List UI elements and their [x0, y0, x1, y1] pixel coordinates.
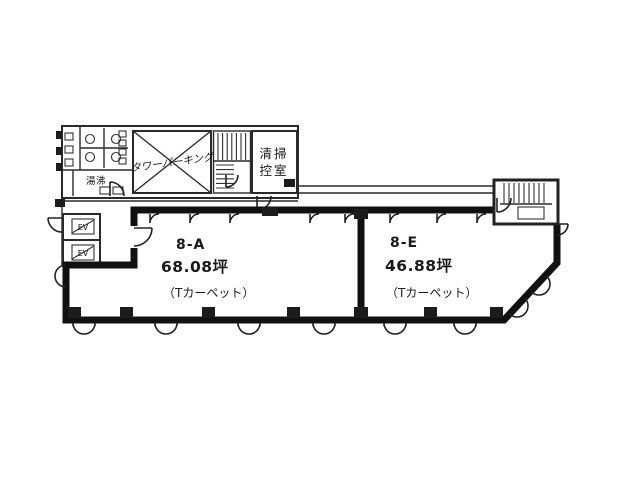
- hot-water-label: 湯沸: [86, 175, 106, 187]
- unit-8e-area: 46.88坪: [385, 257, 453, 275]
- unit-8a-area: 68.08坪: [161, 258, 229, 276]
- unit-8e-id: 8-E: [390, 235, 418, 251]
- floor-plan-page: 湯沸 タワーパーキング 清掃 控室: [0, 0, 640, 480]
- elevator-label: EV: [78, 223, 89, 232]
- unit-8a-id: 8-A: [176, 237, 205, 253]
- unit-8e-finish: （Tカーペット）: [386, 286, 477, 300]
- cleaning-room-label-line1: 清掃: [259, 146, 288, 161]
- column: [55, 199, 65, 207]
- elevator-label: EV: [78, 249, 89, 258]
- floor-plan-canvas: 湯沸 タワーパーキング 清掃 控室: [0, 0, 640, 480]
- right-stairwell: [494, 180, 558, 224]
- wall-pilasters: [56, 131, 62, 171]
- column: [284, 179, 295, 187]
- unit-8a-finish: （Tカーペット）: [163, 286, 254, 300]
- cleaning-room-label-line2: 控室: [259, 163, 288, 178]
